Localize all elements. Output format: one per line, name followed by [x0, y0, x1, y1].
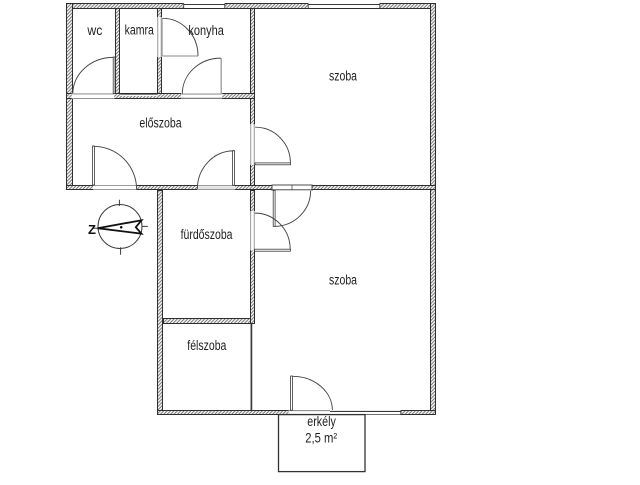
svg-text:wc: wc [86, 23, 102, 38]
svg-text:félszoba: félszoba [187, 338, 227, 353]
svg-text:fürdőszoba: fürdőszoba [181, 227, 233, 242]
svg-text:Z: Z [88, 222, 96, 237]
svg-text:szoba: szoba [329, 69, 357, 84]
svg-text:erkély: erkély [307, 414, 336, 429]
svg-text:kamra: kamra [125, 23, 155, 38]
svg-text:szoba: szoba [329, 272, 357, 287]
svg-text:előszoba: előszoba [139, 116, 182, 131]
svg-text:2,5 m²: 2,5 m² [305, 430, 337, 445]
svg-text:konyha: konyha [188, 23, 224, 38]
